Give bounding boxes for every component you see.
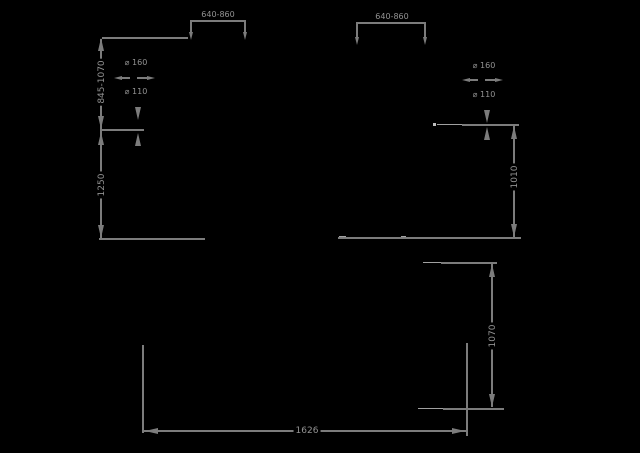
- top-right-bracket-horizontal: [356, 22, 426, 24]
- top-left-bracket-horizontal: [190, 20, 246, 22]
- front-view-left-extension-line: [142, 345, 144, 433]
- arrowhead-right-icon: [147, 76, 155, 80]
- arrowhead-up-icon: [98, 38, 104, 51]
- arrowhead-down-icon: [98, 116, 104, 129]
- arrowhead-up-icon: [135, 133, 141, 146]
- arrowhead-down-icon: [484, 110, 490, 123]
- arrowhead-up-icon: [489, 264, 495, 277]
- arrowhead-up-icon: [511, 126, 517, 139]
- front-bottom-reference-line: [443, 408, 504, 410]
- left-junction-reference-line: [101, 129, 144, 131]
- arrowhead-down-icon: [135, 107, 141, 120]
- arrowhead-down-icon: [355, 37, 359, 45]
- top-right-bracket-right-drop: [424, 22, 426, 38]
- dim-label-wheel-front-right: ⌀ 160: [471, 61, 498, 71]
- arrowhead-right-icon: [495, 78, 503, 82]
- arrowhead-down-icon: [189, 32, 193, 40]
- technical-drawing-canvas: 640-860 845-1070 1250 ⌀ 160 ⌀ 110 640-86…: [0, 0, 640, 453]
- dim-label-top-left-span: 640-860: [199, 10, 236, 20]
- arrowhead-left-icon: [145, 428, 158, 434]
- arrowhead-up-icon: [98, 132, 104, 145]
- arrowhead-right-icon: [452, 428, 465, 434]
- ground-line-light-tick: [401, 236, 406, 237]
- front-view-right-extension-line: [466, 343, 468, 436]
- arrowhead-up-icon: [484, 127, 490, 140]
- arrowhead-down-icon: [511, 224, 517, 237]
- arrowhead-down-icon: [423, 37, 427, 45]
- dim-label-wheel-rear-right: ⌀ 110: [471, 90, 498, 100]
- dim-label-wheel-rear-left: ⌀ 110: [123, 87, 150, 97]
- top-left-reference-line: [102, 37, 188, 39]
- ground-line-light-tick: [339, 236, 346, 237]
- dim-label-top-right-span: 640-860: [373, 12, 410, 22]
- right-ground-line: [338, 237, 521, 239]
- arrowhead-down-icon: [243, 32, 247, 40]
- front-top-reference-light-segment: [423, 262, 441, 263]
- dim-label-adjustable-height: 845-1070: [97, 58, 107, 105]
- dim-label-wheel-front-left: ⌀ 160: [123, 58, 150, 68]
- front-bottom-reference-light-segment: [418, 408, 443, 409]
- right-reference-line-light-segment: [437, 124, 463, 125]
- arrowhead-left-icon: [114, 76, 122, 80]
- arrowhead-left-icon: [462, 78, 470, 82]
- dim-label-overall-width: 1626: [294, 426, 321, 436]
- top-right-bracket-left-drop: [356, 22, 358, 38]
- dim-label-height-right: 1010: [510, 164, 520, 191]
- dim-label-overall-height-front: 1070: [488, 323, 498, 350]
- arrowhead-down-icon: [489, 394, 495, 407]
- reference-dot: [433, 123, 436, 126]
- dim-label-overall-height-left: 1250: [97, 172, 107, 199]
- left-ground-line: [99, 238, 205, 240]
- arrowhead-down-icon: [98, 225, 104, 238]
